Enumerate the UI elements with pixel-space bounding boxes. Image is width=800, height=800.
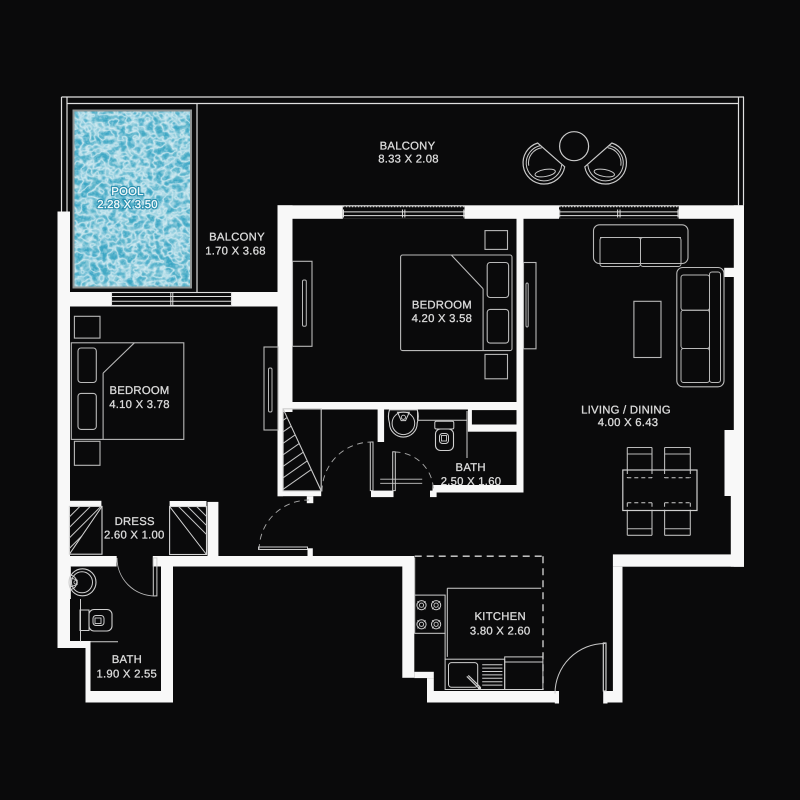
svg-text:BATH: BATH (456, 462, 486, 474)
svg-text:LIVING / DINING: LIVING / DINING (581, 405, 671, 417)
svg-text:8.33 X 2.08: 8.33 X 2.08 (378, 154, 439, 166)
svg-text:4.20 X 3.58: 4.20 X 3.58 (412, 313, 473, 325)
svg-text:KITCHEN: KITCHEN (475, 611, 526, 623)
svg-text:DRESS: DRESS (115, 516, 155, 528)
svg-text:2.60 X 1.00: 2.60 X 1.00 (104, 529, 165, 541)
svg-text:BEDROOM: BEDROOM (412, 300, 472, 312)
svg-text:BEDROOM: BEDROOM (109, 385, 169, 397)
svg-text:3.80 X 2.60: 3.80 X 2.60 (470, 625, 531, 637)
svg-text:2.50 X 1.60: 2.50 X 1.60 (441, 476, 502, 488)
svg-text:2.28 X 3.50: 2.28 X 3.50 (97, 199, 158, 211)
svg-text:POOL: POOL (111, 186, 143, 198)
svg-text:BALCONY: BALCONY (209, 232, 265, 244)
svg-text:1.90 X 2.55: 1.90 X 2.55 (97, 669, 158, 681)
svg-text:BALCONY: BALCONY (380, 141, 436, 153)
svg-text:BATH: BATH (112, 654, 142, 666)
svg-text:4.10 X 3.78: 4.10 X 3.78 (109, 399, 170, 411)
svg-text:1.70 X 3.68: 1.70 X 3.68 (205, 246, 266, 258)
svg-text:4.00 X 6.43: 4.00 X 6.43 (598, 417, 659, 429)
